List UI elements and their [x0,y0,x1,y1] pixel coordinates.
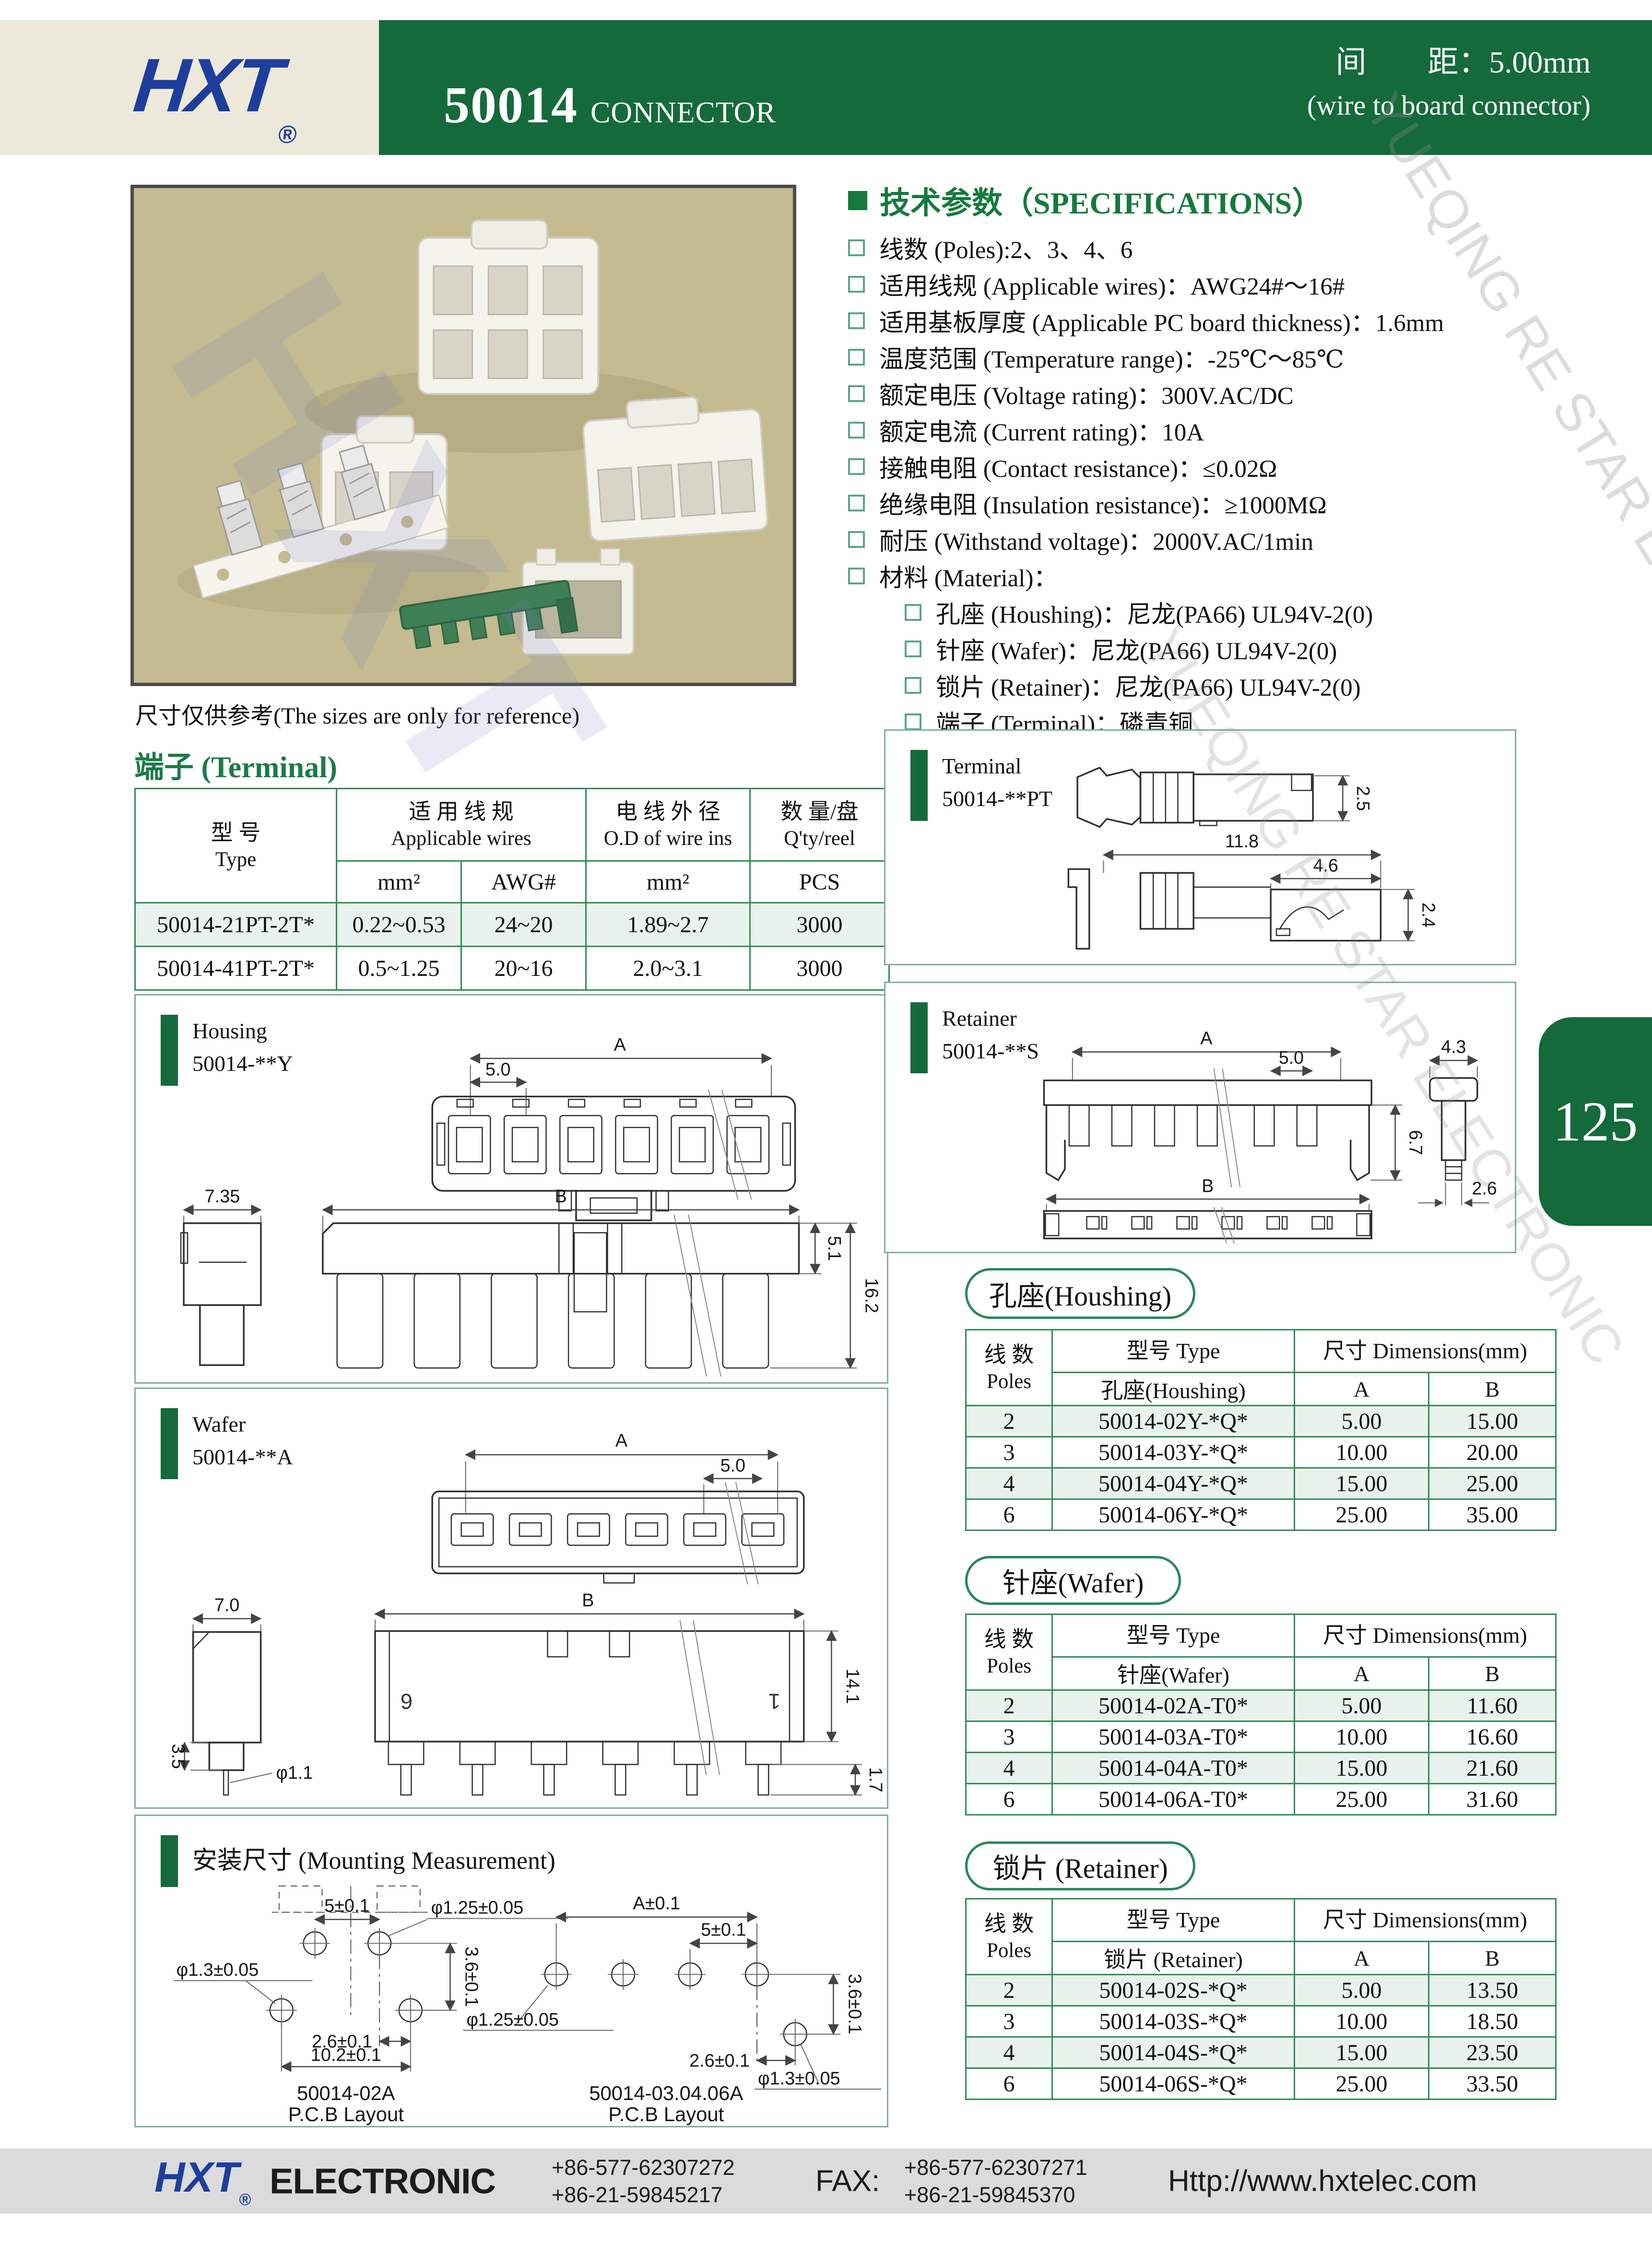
photo-caption: 尺寸仅供参考(The sizes are only for reference) [135,697,579,730]
terminal-section-title: 端子 (Terminal) [134,743,337,786]
cell-poles: 6 [966,2068,1052,2100]
cell-poles: 3 [966,1437,1052,1468]
spec-item: 线数 (Poles):2、3、4、6 [848,229,1648,266]
footer-tel1: +86-577-62307272 [552,2154,735,2181]
header-cn: 数 量/盘 [751,798,888,826]
spec-item-text: 温度范围 (Temperature range)：-25℃～85℃ [879,339,1344,375]
cell-a: 25.00 [1295,1784,1429,1815]
cell-a: 25.00 [1295,2068,1429,2100]
dim-h: 14.1 [843,1669,863,1704]
header-en: O.D of wire ins [587,826,749,852]
brand-logo-text: HXT [130,43,284,128]
wafer-table: 线 数 Poles 型号 Type 尺寸 Dimensions(mm) 针座(W… [965,1614,1557,1816]
cell-qty: 3000 [750,947,889,990]
table-row: 50014-41PT-2T* 0.5~1.25 20~16 2.0~3.1 30… [135,947,889,990]
brand-logo: HXT® [128,42,306,149]
part-number: 50014 [444,76,578,135]
footer-logo-text: HXT [154,2153,239,2201]
drawing-code: 50014-**PT [942,783,1052,815]
cell-type: 50014-04Y-*Q* [1052,1468,1295,1499]
footer-company: ELECTRONIC [270,2161,496,2202]
spec-item: 额定电压 (Voltage rating)：300V.AC/DC [848,375,1648,412]
dim-h2: 2.4 [1418,902,1439,927]
table-row: 650014-06Y-*Q*25.0035.00 [966,1499,1556,1531]
col-header-dims: 尺寸 Dimensions(mm) [1295,1330,1556,1373]
registered-mark: ® [276,121,297,149]
col-header-type: 型号 Type [1052,1614,1295,1657]
cell-poles: 2 [966,1406,1052,1437]
spec-item: 温度范围 (Temperature range)：-25℃～85℃ [848,339,1648,375]
dim-hole1: φ1.25±0.05 [431,1898,524,1918]
table-row: 650014-06S-*Q*25.0033.50 [966,2068,1556,2100]
dim-b: B [1202,1175,1214,1196]
bullet-hollow-square-icon [848,458,865,475]
wafer-drawing-label: Wafer 50014-**A [161,1408,293,1479]
col-header-poles: 线 数 Poles [966,1614,1052,1690]
specifications: 技术参数（SPECIFICATIONS） 线数 (Poles):2、3、4、6 … [848,178,1648,740]
spec-item-text: 材料 (Material)： [879,558,1058,593]
subheader-mm2: mm² [586,861,750,903]
spec-item: 绝缘电阻 (Insulation resistance)：≥1000MΩ [848,485,1648,521]
retainer-front-view: A 5.0 6.7 [1044,1028,1426,1187]
cell-b: 16.60 [1429,1721,1556,1753]
footer-fax-label: FAX: [815,2164,880,2198]
col-header-type: 型号 Type [1052,1330,1295,1373]
spec-item: 额定电流 (Current rating)：10A [848,412,1648,448]
housing-drawing-label: Housing 50014-**Y [161,1015,293,1086]
col-header-dims: 尺寸 Dimensions(mm) [1295,1899,1556,1942]
drawing-code: 50014-**A [192,1441,293,1473]
cell-type: 50014-06A-T0* [1052,1784,1295,1815]
table-row: 50014-21PT-2T* 0.22~0.53 24~20 1.89~2.7 … [135,903,889,947]
spec-item-text: 线数 (Poles):2、3、4、6 [879,230,1133,265]
header-en: Poles [967,1938,1051,1964]
subheader-b: B [1429,1373,1556,1406]
cell-poles: 2 [966,1690,1052,1721]
spec-item-text: 耐压 (Withstand voltage)：2000V.AC/1min [879,522,1313,557]
dim-pitch: 5.0 [720,1455,745,1475]
table-row: 250014-02A-T0*5.0011.60 [966,1690,1556,1721]
spec-item: 适用线规 (Applicable wires)：AWG24#～16# [848,266,1648,302]
table-row: 450014-04S-*Q*15.0023.50 [966,2037,1556,2068]
product-photo-illustration [134,188,793,683]
retainer-bottom-view: B [1044,1175,1371,1243]
cell-a: 15.00 [1295,1753,1429,1784]
cell-mm2: 0.22~0.53 [337,903,461,947]
dim-pitch: 5.0 [485,1059,510,1080]
part-suffix: CONNECTOR [590,96,776,130]
cell-type: 50014-04S-*Q* [1052,2037,1295,2068]
table-row: 350014-03Y-*Q*10.0020.00 [966,1437,1556,1468]
cell-b: 20.00 [1429,1437,1556,1468]
spec-item-text: 接触电阻 (Contact resistance)：≤0.02Ω [879,449,1277,484]
cell-b: 15.00 [1429,1406,1556,1437]
dim-hole1: φ1.25±0.05 [466,2010,559,2030]
bullet-hollow-square-icon [905,677,921,694]
subheader-part: 孔座(Houshing) [1052,1373,1295,1406]
footer-tel2: +86-21-59845217 [552,2181,735,2208]
cell-poles: 3 [966,1721,1052,1753]
retainer-side-view: 4.3 2.6 [1418,1036,1497,1205]
table-row: 250014-02S-*Q*5.0013.50 [966,1975,1556,2006]
header-cn: 适 用 线 规 [337,798,585,826]
registered-mark: ® [239,2191,251,2209]
subheader-pcs: PCS [750,861,889,903]
drawing-name: Wafer [192,1408,293,1441]
bullet-hollow-square-icon [848,239,865,256]
subheader-a: A [1295,1373,1429,1406]
cell-poles: 2 [966,1975,1052,2006]
pitch-subtitle: (wire to board connector) [1307,89,1591,121]
spec-item-text: 孔座 (Houshing)：尼龙(PA66) UL94V-2(0) [936,594,1373,630]
cell-b: 11.60 [1429,1690,1556,1721]
table-row: 350014-03A-T0*10.0016.60 [966,1721,1556,1753]
green-bar-icon [161,1015,178,1086]
spec-item: 接触电阻 (Contact resistance)：≤0.02Ω [848,448,1648,485]
spec-item-text: 绝缘电阻 (Insulation resistance)：≥1000MΩ [879,485,1327,521]
header-cn: 线 数 [967,1341,1051,1369]
cell-poles: 6 [966,1784,1052,1815]
footer: HXT® ELECTRONIC +86-577-62307272 +86-21-… [0,2148,1652,2214]
table-row: 650014-06A-T0*25.0031.60 [966,1784,1556,1815]
cell-type: 50014-06S-*Q* [1052,2068,1295,2100]
subheader-b: B [1429,1657,1556,1690]
wafer-top-view: A 5.0 [432,1430,804,1584]
cell-od: 1.89~2.7 [586,903,750,947]
housing-table-title: 孔座(Houshing) [965,1268,1195,1319]
cell-type: 50014-04A-T0* [1052,1753,1295,1784]
green-bar-icon [910,1002,928,1073]
header-en: Type [136,847,336,873]
cell-type: 50014-03Y-*Q* [1052,1437,1295,1468]
dim-pitch: 5.0 [1279,1047,1304,1068]
table-row: 250014-02Y-*Q*5.0015.00 [966,1406,1556,1437]
header-en: Poles [967,1653,1051,1679]
cell-a: 5.00 [1295,1406,1429,1437]
cell-b: 25.00 [1429,1468,1556,1499]
header-cn: 电 线 外 径 [587,798,749,826]
pcb-layout-03-04-06a: A±0.1 5±0.1 φ1.25±0.05 3.6±0.1 2.6±0.1 [463,1894,881,2125]
cell-b: 21.60 [1429,1753,1556,1784]
spec-item-material: 孔座 (Houshing)：尼龙(PA66) UL94V-2(0) [905,594,1648,630]
col-header-applicable-wires: 适 用 线 规 Applicable wires [337,789,586,861]
pcb-layout-02a: 5±0.1 φ1.25±0.05 φ1.3±0.05 3.6±0.1 2.6±0… [174,1886,568,2125]
header-cn: 线 数 [967,1626,1051,1653]
footer-website: Http://www.hxtelec.com [1168,2164,1477,2198]
mounting-box: 安装尺寸 (Mounting Measurement) 5±0.1 φ1.25±… [134,1815,888,2127]
dim-hole2: φ1.3±0.05 [758,2068,840,2089]
wafer-front-view: B 6 1 14.1 [375,1590,886,1795]
cell-a: 10.00 [1295,1437,1429,1468]
cell-a: 25.00 [1295,1499,1429,1531]
cell-type: 50014-21PT-2T* [135,903,337,947]
cell-b: 33.50 [1429,2068,1556,2100]
dim-h2: 16.2 [862,1278,882,1313]
page-number: 125 [1553,1089,1638,1154]
bullet-hollow-square-icon [848,312,865,329]
cell-qty: 3000 [750,903,889,947]
drawing-name: Retainer [942,1002,1039,1035]
cell-a: 5.00 [1295,1975,1429,2006]
footer-fax-numbers: +86-577-62307271 +86-21-59845370 [904,2154,1087,2208]
drawing-name: Terminal [942,750,1052,783]
drawing-code: 50014-**S [942,1035,1039,1068]
layout-caption: 50014-02A [297,2082,395,2104]
cell-type: 50014-02Y-*Q* [1052,1406,1295,1437]
dim-span: 10.2±0.1 [311,2045,381,2065]
dim-a: A [1200,1028,1212,1048]
col-header-type: 型 号 Type [135,789,337,903]
housing-top-view: A 5.0 [432,1034,795,1220]
spec-item-text: 额定电压 (Voltage rating)：300V.AC/DC [879,376,1294,411]
drawing-name: Housing [192,1015,293,1047]
housing-drawing-box: Housing 50014-**Y A 5.0 [134,994,888,1384]
mounting-holes [541,1959,811,2049]
dim-vertical: 3.6±0.1 [461,1946,481,2007]
cell-b: 18.50 [1429,2006,1556,2037]
cell-b: 23.50 [1429,2037,1556,2068]
pitch-label: 间 距：5.00mm [1307,37,1591,82]
dim-hole2: φ1.3±0.05 [177,1960,259,1980]
footer-fax1: +86-577-62307271 [904,2154,1087,2181]
green-bar-icon [161,1835,178,1887]
header-pitch: 间 距：5.00mm (wire to board connector) [1307,37,1591,121]
housing-front-view: B 5.1 [323,1186,882,1377]
cell-type: 50014-03A-T0* [1052,1721,1295,1753]
layout-caption: 50014-03.04.06A [589,2082,743,2104]
spec-item: 材料 (Material)： [848,558,1648,594]
specifications-title: 技术参数（SPECIFICATIONS） [848,178,1648,223]
footer-logo: HXT® [154,2153,251,2209]
housing-table: 线 数 Poles 型号 Type 尺寸 Dimensions(mm) 孔座(H… [965,1329,1557,1531]
bullet-hollow-square-icon [848,385,865,402]
col-header-dims: 尺寸 Dimensions(mm) [1295,1614,1556,1657]
terminal-drawing-label: Terminal 50014-**PT [910,750,1052,821]
dim-width: 7.0 [214,1595,239,1615]
wafer-table-title: 针座(Wafer) [965,1556,1181,1605]
subheader-b: B [1429,1942,1556,1975]
spec-item: 耐压 (Withstand voltage)：2000V.AC/1min [848,521,1648,558]
col-header-qty: 数 量/盘 Q'ty/reel [750,789,889,861]
cell-a: 15.00 [1295,1468,1429,1499]
cell-b: 35.00 [1429,1499,1556,1531]
spec-item-material: 针座 (Wafer)：尼龙(PA66) UL94V-2(0) [905,630,1648,667]
wafer-side-view: 7.0 3.5 φ1.1 [168,1595,313,1795]
cell-b: 31.60 [1429,1784,1556,1815]
bullet-hollow-square-icon [905,713,921,730]
specifications-title-text: 技术参数（SPECIFICATIONS） [880,178,1322,223]
col-header-type: 型号 Type [1052,1899,1295,1942]
dim-h1: 5.1 [825,1236,845,1261]
drawing-code: 50014-**Y [192,1047,293,1080]
pin-number-1: 1 [768,1689,780,1714]
spec-item: 适用基板厚度 (Applicable PC board thickness)：1… [848,302,1648,339]
dim-pin-dia: φ1.1 [276,1762,313,1782]
header-en: Applicable wires [337,826,585,852]
dim-pitch: 5±0.1 [324,1896,369,1916]
cell-type: 50014-03S-*Q* [1052,2006,1295,2037]
wafer-drawing-box: Wafer 50014-**A A 5.0 [134,1388,888,1809]
layout-caption2: P.C.B Layout [608,2103,724,2125]
cell-a: 10.00 [1295,2006,1429,2037]
footer-phones: +86-577-62307272 +86-21-59845217 [552,2154,735,2208]
spec-item-text: 适用基板厚度 (Applicable PC board thickness)：1… [879,303,1444,338]
cell-poles: 4 [966,2037,1052,2068]
dim-offset: 2.6±0.1 [689,2051,750,2071]
page-number-tab: 125 [1539,1017,1652,1226]
dim-a: A±0.1 [633,1894,681,1914]
subheader-part: 针座(Wafer) [1052,1657,1295,1690]
col-header-poles: 线 数 Poles [966,1330,1052,1406]
header-cn: 线 数 [967,1910,1051,1938]
terminal-top-view: 2.5 [1077,768,1373,827]
terminal-table: 型 号 Type 适 用 线 规 Applicable wires 电 线 外 … [134,788,890,991]
footer-fax2: +86-21-59845370 [904,2181,1087,2208]
retainer-table: 线 数 Poles 型号 Type 尺寸 Dimensions(mm) 锁片 (… [965,1898,1557,2100]
bullet-hollow-square-icon [905,641,921,657]
dim-l2: 1.7 [866,1767,886,1792]
terminal-side-view: 11.8 4.6 2.4 [1068,831,1439,949]
datasheet-page: HXT YUEQING RE STAR ELECTRONIC YUEQING R… [0,0,1652,2243]
subheader-a: A [1295,1657,1429,1690]
dim-vertical: 3.6±0.1 [844,1974,864,2034]
mounting-label: 安装尺寸 (Mounting Measurement) [161,1835,555,1887]
retainer-drawing-box: Retainer 50014-**S A 5.0 [884,982,1516,1253]
housing-side-view: 7.35 [181,1186,261,1365]
cell-awg: 20~16 [461,947,586,990]
dim-h: 6.7 [1405,1130,1426,1155]
bullet-square-icon [848,191,867,210]
dim-width: 7.35 [205,1186,240,1206]
col-header-poles: 线 数 Poles [966,1899,1052,1975]
page-title: 50014 CONNECTOR [444,76,776,135]
bullet-hollow-square-icon [848,276,865,293]
col-header-od: 电 线 外 径 O.D of wire ins [586,789,750,861]
dim-w: 4.3 [1441,1036,1466,1056]
header-cn: 型 号 [136,819,336,847]
green-bar-icon [910,750,928,821]
cell-mm2: 0.5~1.25 [337,947,461,990]
subheader-mm2: mm² [337,861,461,903]
product-photo [130,185,796,686]
header-en: Poles [967,1369,1051,1395]
mounting-drawing: 5±0.1 φ1.25±0.05 φ1.3±0.05 3.6±0.1 2.6±0… [136,1871,887,2125]
bullet-hollow-square-icon [848,495,865,511]
cell-poles: 6 [966,1499,1052,1531]
retainer-drawing-label: Retainer 50014-**S [910,1002,1039,1073]
dim-t: 2.6 [1472,1178,1497,1198]
dim-b: B [555,1186,567,1206]
bullet-hollow-square-icon [848,531,865,548]
layout-caption2: P.C.B Layout [288,2103,404,2125]
subheader-a: A [1295,1942,1429,1975]
table-row: 450014-04A-T0*15.0021.60 [966,1753,1556,1784]
bullet-hollow-square-icon [848,568,865,584]
bullet-hollow-square-icon [848,422,865,439]
cell-a: 5.00 [1295,1690,1429,1721]
dim-l2: 4.6 [1313,855,1338,875]
terminal-drawing-box: Terminal 50014-**PT 2.5 [884,729,1516,965]
cell-awg: 24~20 [461,903,586,947]
subheader-part: 锁片 (Retainer) [1052,1942,1295,1975]
spec-item-text: 针座 (Wafer)：尼龙(PA66) UL94V-2(0) [936,631,1337,666]
spec-item-text: 锁片 (Retainer)：尼龙(PA66) UL94V-2(0) [936,667,1361,703]
dim-length: 11.8 [1225,831,1259,851]
green-bar-icon [161,1408,178,1479]
pin-number-6: 6 [401,1689,413,1714]
dim-a: A [615,1430,628,1450]
photo-housing-6pos [418,220,598,394]
mounting-holes [266,1928,426,2026]
cell-type: 50014-02S-*Q* [1052,1975,1295,2006]
dim-l1: 3.5 [168,1744,189,1768]
cell-type: 50014-06Y-*Q* [1052,1499,1295,1531]
mounting-title: 安装尺寸 (Mounting Measurement) [192,1835,555,1887]
cell-poles: 4 [966,1468,1052,1499]
cell-type: 50014-02A-T0* [1052,1690,1295,1721]
dim-a: A [614,1034,626,1055]
bullet-hollow-square-icon [905,604,921,621]
table-row: 450014-04Y-*Q*15.0025.00 [966,1468,1556,1499]
cell-a: 10.00 [1295,1721,1429,1753]
bullet-hollow-square-icon [848,349,865,366]
dim-pitch: 5±0.1 [701,1920,746,1940]
dim-h: 2.5 [1353,786,1373,811]
cell-poles: 4 [966,1753,1052,1784]
cell-poles: 3 [966,2006,1052,2037]
retainer-table-title: 锁片 (Retainer) [965,1841,1195,1890]
dim-b: B [582,1590,594,1610]
spec-item-text: 额定电流 (Current rating)：10A [879,412,1204,448]
cell-type: 50014-41PT-2T* [135,947,337,990]
spec-item-text: 适用线规 (Applicable wires)：AWG24#～16# [879,266,1345,302]
cell-od: 2.0~3.1 [586,947,750,990]
table-row: 350014-03S-*Q*10.0018.50 [966,2006,1556,2037]
subheader-awg: AWG# [461,861,586,903]
cell-a: 15.00 [1295,2037,1429,2068]
spec-item-material: 锁片 (Retainer)：尼龙(PA66) UL94V-2(0) [905,667,1648,703]
header-en: Q'ty/reel [751,826,888,852]
cell-b: 13.50 [1429,1975,1556,2006]
